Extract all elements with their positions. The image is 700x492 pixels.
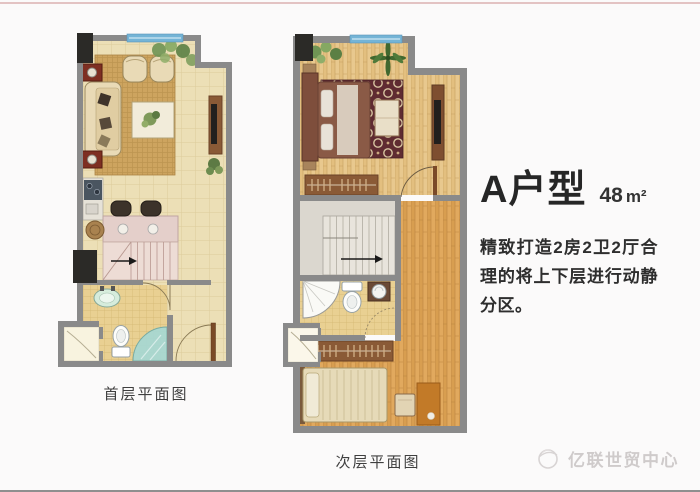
second-floor-plan [283,28,473,448]
toilet [342,282,362,313]
unit-description: 精致打造2房2卫2厅合理的将上下层进行动静分区。 [480,233,658,320]
second-bed [300,366,387,424]
round-sink [368,282,390,301]
sofa [85,82,121,156]
stool [395,394,415,416]
closet-hangers [305,175,378,195]
kitchen-counter [83,178,103,220]
unit-area: 48m² [599,184,646,208]
watermark: 亿联世贸中心 [534,444,679,472]
area-unit: m² [626,187,647,206]
elevator [64,327,99,361]
floorplan-page: 首层平面图 次层平面图 A户型 48m² 精致打造2房2卫2厅合理的将上下层进行… [0,0,700,492]
coffee-table [132,102,174,138]
toilet [112,326,130,358]
first-floor-plan [55,30,235,380]
tv-cabinet [432,85,444,160]
watermark-logo-icon [534,444,562,472]
top-divider [0,2,700,4]
wicker-basket [86,221,104,239]
second-floor-label: 次层平面图 [313,451,443,472]
first-floor-label: 首层平面图 [81,383,211,404]
bar-counter [103,216,178,242]
watermark-text: 亿联世贸中心 [568,446,679,471]
area-value: 48 [599,184,622,207]
elevator [288,328,318,362]
staircase-icon [323,216,395,275]
tv-cabinet [209,96,222,154]
staircase-icon [103,242,178,280]
unit-info: A户型 48m² 精致打造2房2卫2厅合理的将上下层进行动静分区。 [480,158,675,320]
unit-title: A户型 [480,158,586,213]
bed-bench [375,100,399,136]
desk [417,383,440,425]
